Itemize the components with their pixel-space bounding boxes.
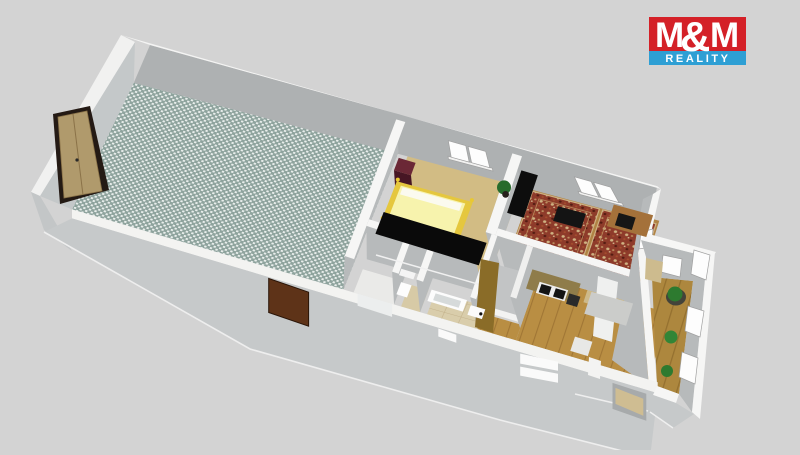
svg-text:REALITY: REALITY xyxy=(665,53,730,65)
svg-text:M: M xyxy=(710,16,739,55)
